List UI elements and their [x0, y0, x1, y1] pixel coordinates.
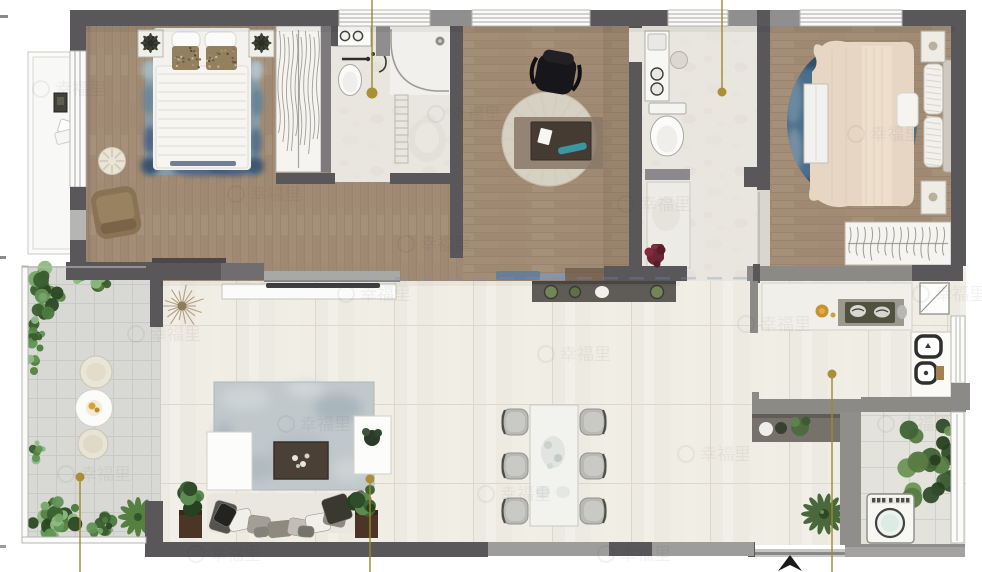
svg-text:幸福里: 幸福里: [450, 105, 501, 124]
svg-text:幸福里: 幸福里: [760, 315, 811, 334]
svg-text:幸福里: 幸福里: [500, 485, 551, 504]
svg-text:幸福里: 幸福里: [250, 185, 301, 204]
svg-text:幸福里: 幸福里: [870, 125, 921, 144]
svg-text:幸福里: 幸福里: [360, 285, 411, 304]
svg-text:幸福里: 幸福里: [55, 80, 106, 99]
svg-text:幸福里: 幸福里: [900, 415, 951, 434]
svg-text:幸福里: 幸福里: [420, 235, 471, 254]
svg-text:幸福里: 幸福里: [210, 545, 261, 564]
svg-text:幸福里: 幸福里: [640, 195, 691, 214]
svg-text:幸福里: 幸福里: [560, 345, 611, 364]
svg-text:幸福里: 幸福里: [300, 415, 351, 434]
svg-text:幸福里: 幸福里: [620, 545, 671, 564]
svg-text:幸福里: 幸福里: [935, 285, 982, 304]
svg-text:幸福里: 幸福里: [700, 445, 751, 464]
svg-text:幸福里: 幸福里: [80, 465, 131, 484]
svg-text:幸福里: 幸福里: [150, 325, 201, 344]
